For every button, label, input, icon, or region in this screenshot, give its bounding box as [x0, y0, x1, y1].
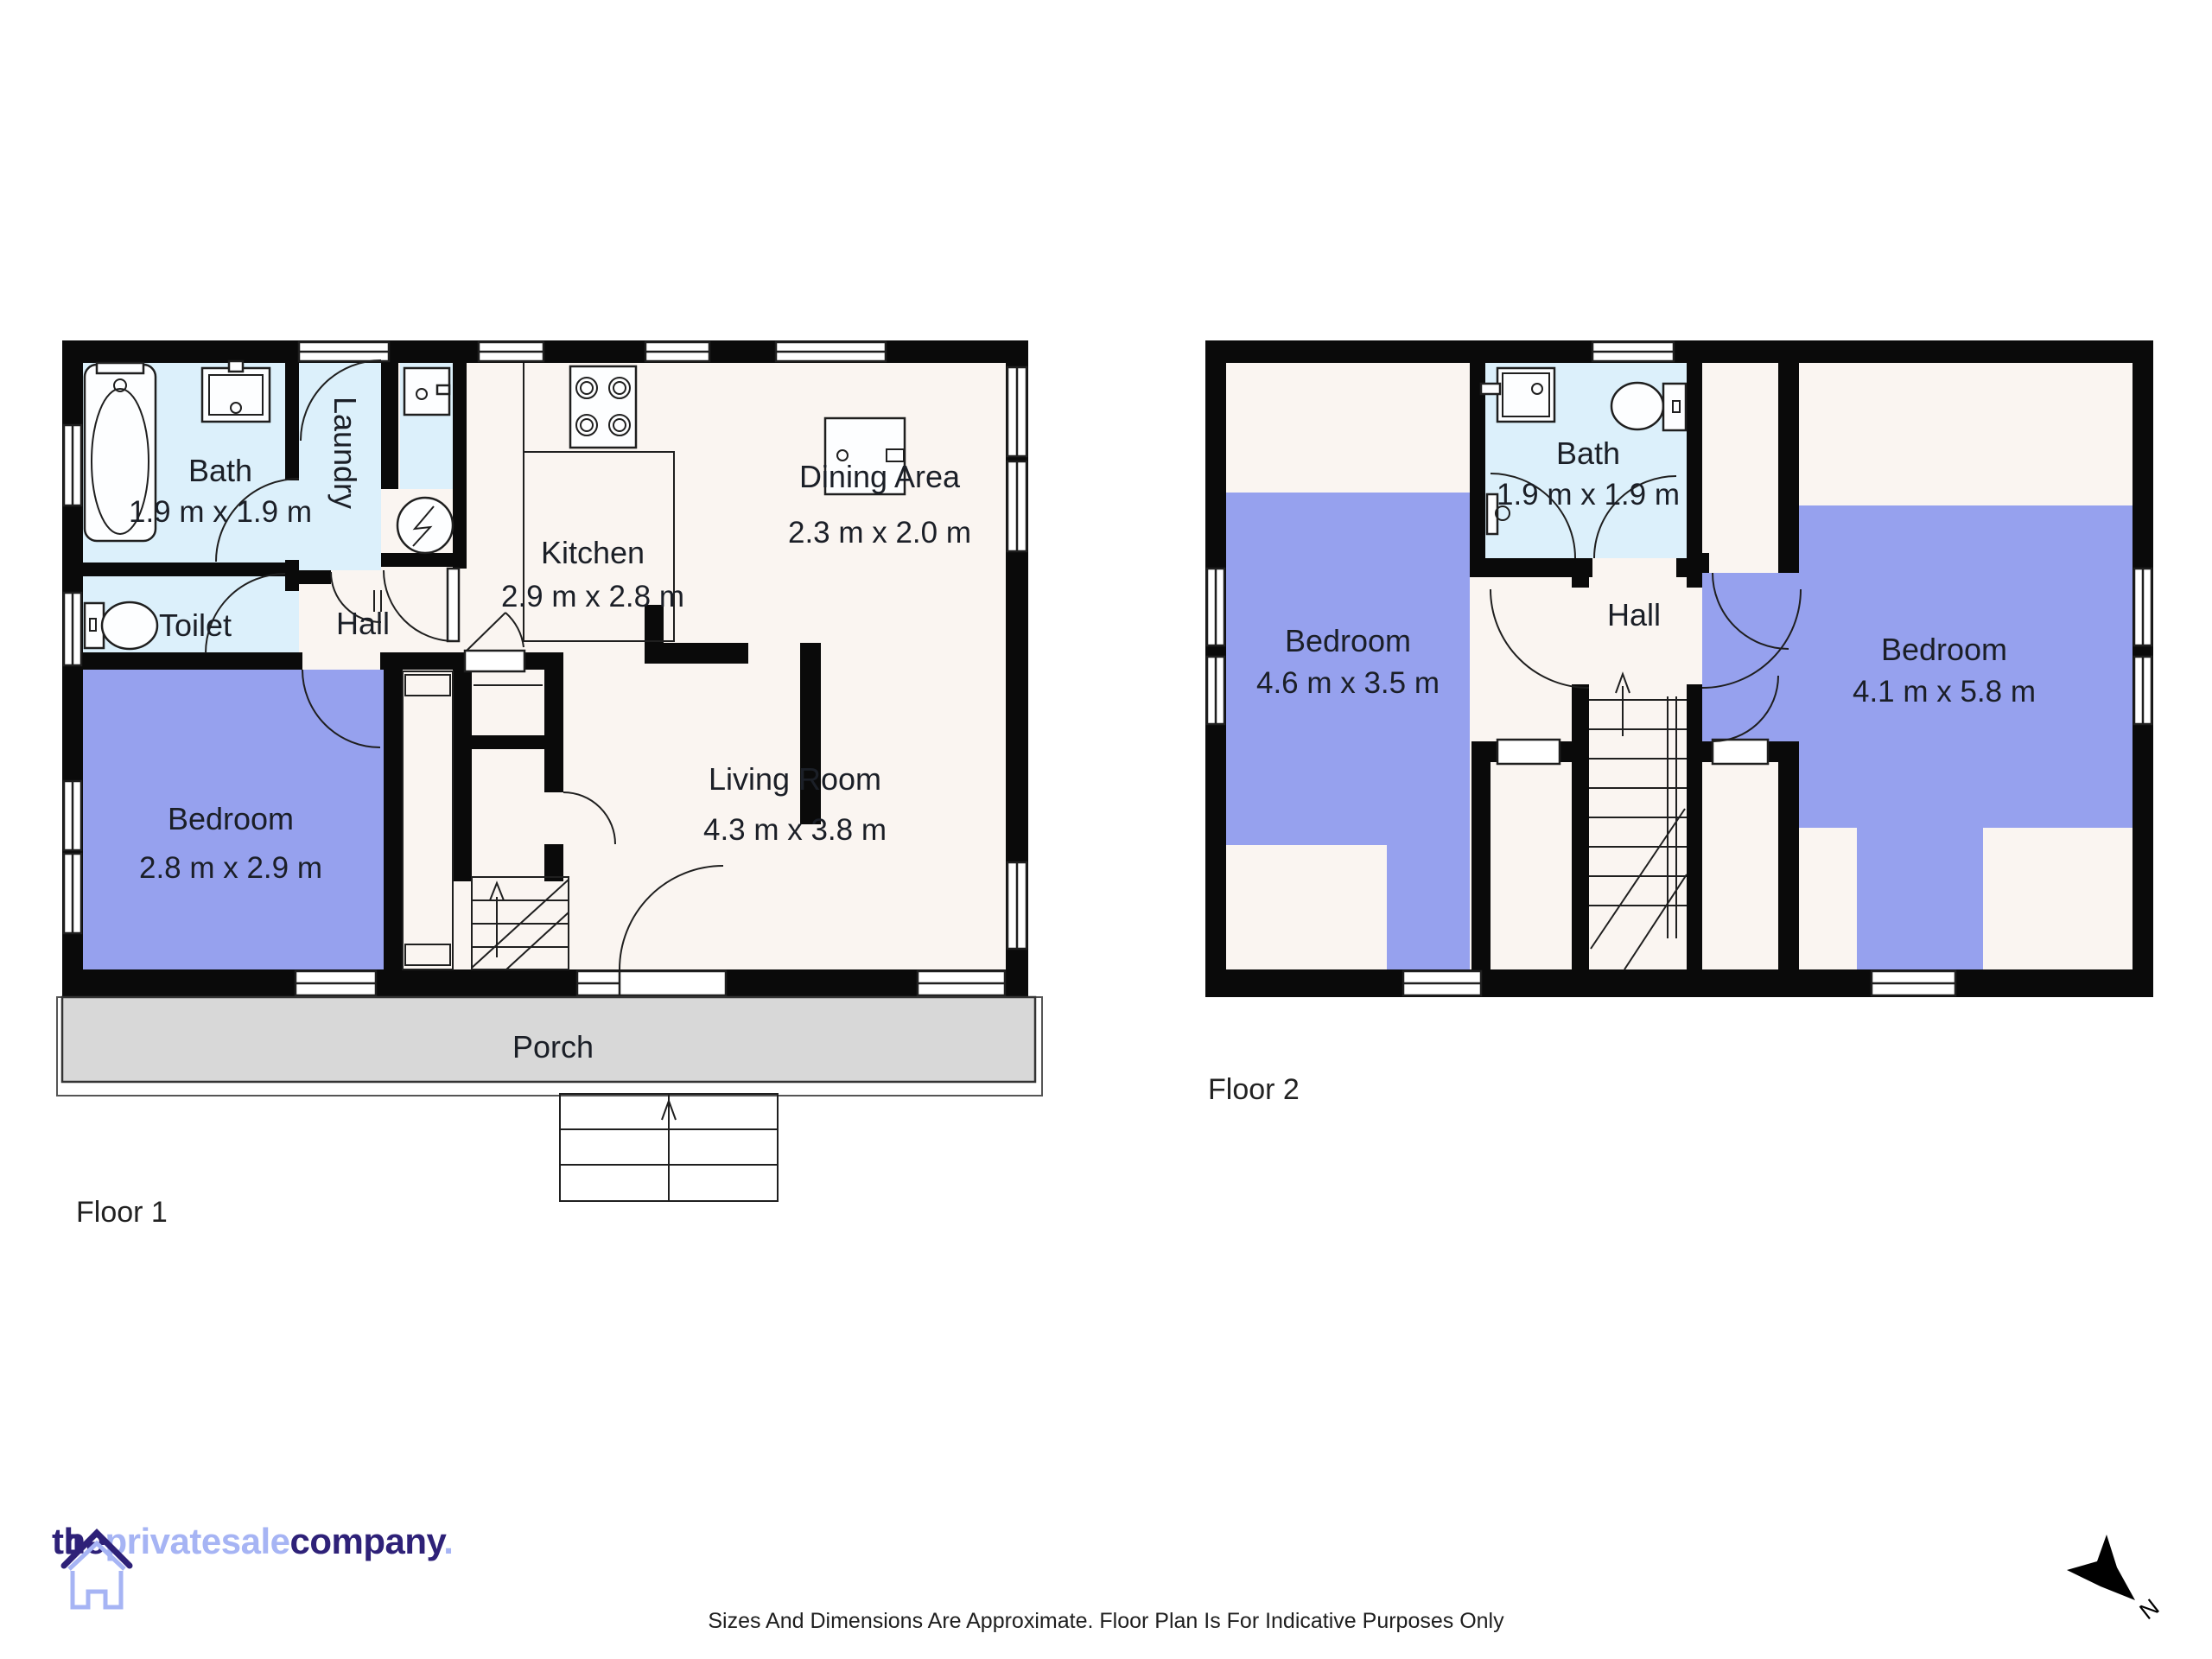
floor2-plan: Bath 1.9 m x 1.9 m Hall Bedroom 4.6 m x …	[1205, 340, 2153, 1106]
floor2-hall-label: Hall	[1607, 597, 1661, 632]
steps-icon	[560, 1094, 778, 1201]
toilet-icon	[85, 602, 157, 649]
floor1-hall-label: Hall	[336, 606, 390, 641]
floorplan-page: Bath 1.9 m x 1.9 m Laundry Toilet Hall K…	[0, 0, 2212, 1659]
floor1-dining-dims: 2.3 m x 2.0 m	[788, 516, 971, 550]
logo-part-company: company	[289, 1521, 443, 1561]
floor2-bedroom-left-dims: 4.6 m x 3.5 m	[1256, 666, 1440, 700]
laundry-sink-icon	[404, 368, 449, 415]
floor2-title: Floor 2	[1208, 1073, 1300, 1106]
floor2-bedroom-left-label: Bedroom	[1285, 623, 1411, 658]
floor1-kitchen-label: Kitchen	[541, 535, 645, 570]
floor1-porch-label: Porch	[512, 1029, 594, 1065]
logo-part-period: .	[443, 1521, 453, 1561]
floor1-plan: Bath 1.9 m x 1.9 m Laundry Toilet Hall K…	[57, 340, 1042, 1229]
sink-icon	[202, 361, 270, 422]
floor1-dining-label: Dining Area	[799, 459, 961, 494]
stove-icon	[570, 366, 636, 448]
floor1-kitchen-dims: 2.9 m x 2.8 m	[501, 580, 684, 613]
floor2-bath-label: Bath	[1556, 435, 1620, 471]
floor1-bath-dims: 1.9 m x 1.9 m	[129, 495, 312, 529]
company-logo: theprivatesalecompany.	[52, 1521, 453, 1562]
floor1-bedroom-dims: 2.8 m x 2.9 m	[139, 851, 322, 885]
floor1-living-dims: 4.3 m x 3.8 m	[703, 813, 887, 847]
floor2-bedroom-right-dims: 4.1 m x 5.8 m	[1853, 675, 2036, 709]
floor2-bedroom-right-label: Bedroom	[1881, 632, 2007, 667]
floor1-living-label: Living Room	[709, 761, 881, 797]
disclaimer-text: Sizes And Dimensions Are Approximate. Fl…	[0, 1609, 2212, 1634]
washer-icon	[397, 498, 453, 553]
floor1-bedroom-label: Bedroom	[168, 801, 294, 836]
floorplan-canvas: Bath 1.9 m x 1.9 m Laundry Toilet Hall K…	[0, 0, 2212, 1659]
floor2-bath-dims: 1.9 m x 1.9 m	[1497, 478, 1680, 512]
floor1-title: Floor 1	[76, 1196, 168, 1229]
toilet-icon-floor2	[1611, 383, 1686, 430]
logo-house-icon	[52, 1521, 142, 1614]
floor1-laundry-label: Laundry	[327, 397, 363, 509]
floor1-bath-label: Bath	[188, 453, 252, 488]
floor1-toilet-label: Toilet	[159, 607, 232, 643]
